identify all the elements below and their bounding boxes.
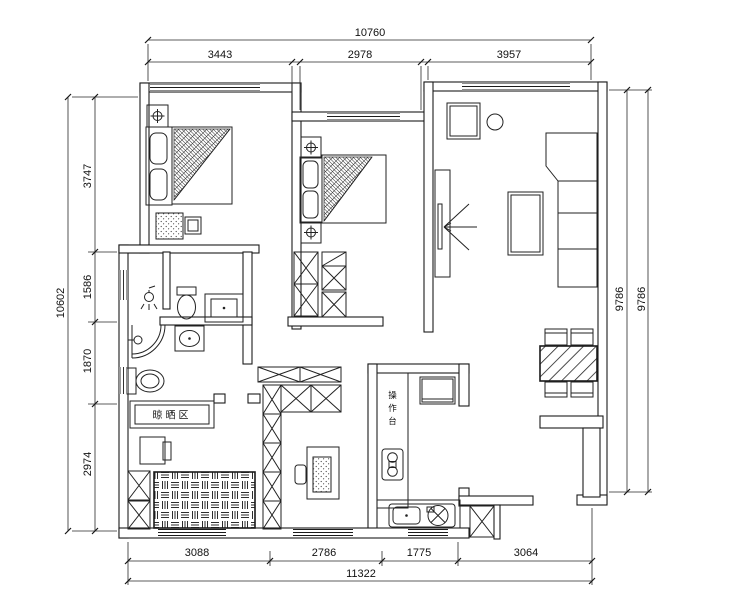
sofa-icon xyxy=(546,133,597,287)
desk-icon xyxy=(295,447,339,499)
stool-icon xyxy=(487,114,503,130)
master-bed-icon xyxy=(146,127,232,205)
dim-label-bottom-seg-1: 3088 xyxy=(185,547,209,559)
master-bedroom xyxy=(146,105,232,239)
dining-table-icon xyxy=(540,329,597,397)
window-living-room xyxy=(462,82,570,91)
dim-label-bottom-seg-2: 2786 xyxy=(312,547,336,559)
nightstand-icon xyxy=(301,222,321,243)
tv-stand-icon xyxy=(435,170,477,277)
dim-label-bottom-total: 11322 xyxy=(346,568,376,580)
floor-plan-drawing: 10760 3443 2978 3957 10602 3747 1586 187… xyxy=(0,0,740,612)
tatami-mat-icon xyxy=(154,472,255,528)
dim-label-left-seg-2: 1586 xyxy=(82,275,94,299)
dim-label-right-2: 9786 xyxy=(636,287,648,311)
dim-label-bottom-seg-3: 1775 xyxy=(407,547,431,559)
study-room xyxy=(258,367,341,529)
coffee-table-icon xyxy=(508,192,543,255)
toilet-icon xyxy=(177,287,196,319)
window-bottom-left xyxy=(158,529,226,538)
sink-icon xyxy=(175,326,204,351)
nightstand-icon xyxy=(147,105,168,127)
dim-label-top-seg-3: 3957 xyxy=(497,49,521,61)
dim-label-left-total: 10602 xyxy=(55,288,67,319)
fridge-icon xyxy=(420,377,455,404)
window-bottom-middle xyxy=(293,529,353,538)
dim-label-left-seg-1: 3747 xyxy=(82,164,94,188)
window-kitchen xyxy=(408,529,448,538)
dim-label-left-seg-4: 2974 xyxy=(82,452,94,476)
dim-label-top-seg-1: 3443 xyxy=(208,49,232,61)
wardrobe-icon xyxy=(294,252,346,317)
entry-cabinet-icon xyxy=(470,506,494,537)
dim-label-bottom-seg-4: 3064 xyxy=(514,547,538,559)
kitchen-counter-label: 操作台 xyxy=(388,390,397,426)
dim-label-top-total: 10760 xyxy=(355,27,386,39)
window-second-bedroom xyxy=(327,112,400,121)
second-bed-icon xyxy=(300,155,386,223)
drying-area-label: 晾晒区 xyxy=(153,409,192,422)
toilet-icon xyxy=(127,368,164,394)
window-bathroom-left xyxy=(119,270,128,300)
stove-icon xyxy=(382,449,403,480)
tatami-room xyxy=(128,437,255,529)
window-master-bedroom xyxy=(150,83,260,92)
drying-area: 晾晒区 xyxy=(130,401,214,428)
sink-counter-icon xyxy=(377,500,460,528)
faucet-icon xyxy=(128,336,142,344)
dim-label-left-seg-3: 1870 xyxy=(82,349,94,373)
kitchen: 操作台 xyxy=(377,373,460,528)
nightstand-icon xyxy=(301,137,321,158)
dresser-icon xyxy=(156,213,201,239)
bathroom xyxy=(127,286,243,394)
second-bedroom xyxy=(294,137,386,317)
cabinet-icon xyxy=(447,103,480,139)
shower-door-arc xyxy=(132,325,165,358)
living-room xyxy=(435,103,597,397)
floor-plan-canvas: 10760 3443 2978 3957 10602 3747 1586 187… xyxy=(0,0,740,612)
shower-icon xyxy=(141,286,157,310)
chair-icon xyxy=(140,437,165,464)
dim-label-right-1: 9786 xyxy=(614,287,626,311)
dim-label-top-seg-2: 2978 xyxy=(348,49,372,61)
